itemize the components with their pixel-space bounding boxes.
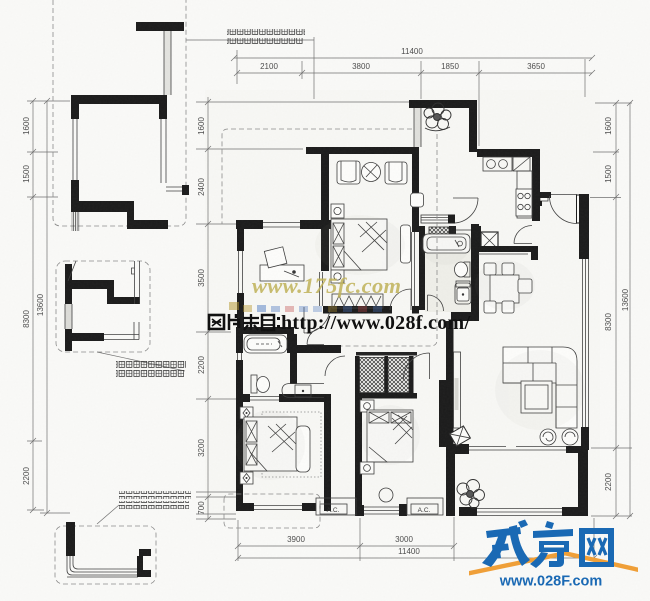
svg-text:www.028F.com: www.028F.com: [499, 574, 603, 590]
